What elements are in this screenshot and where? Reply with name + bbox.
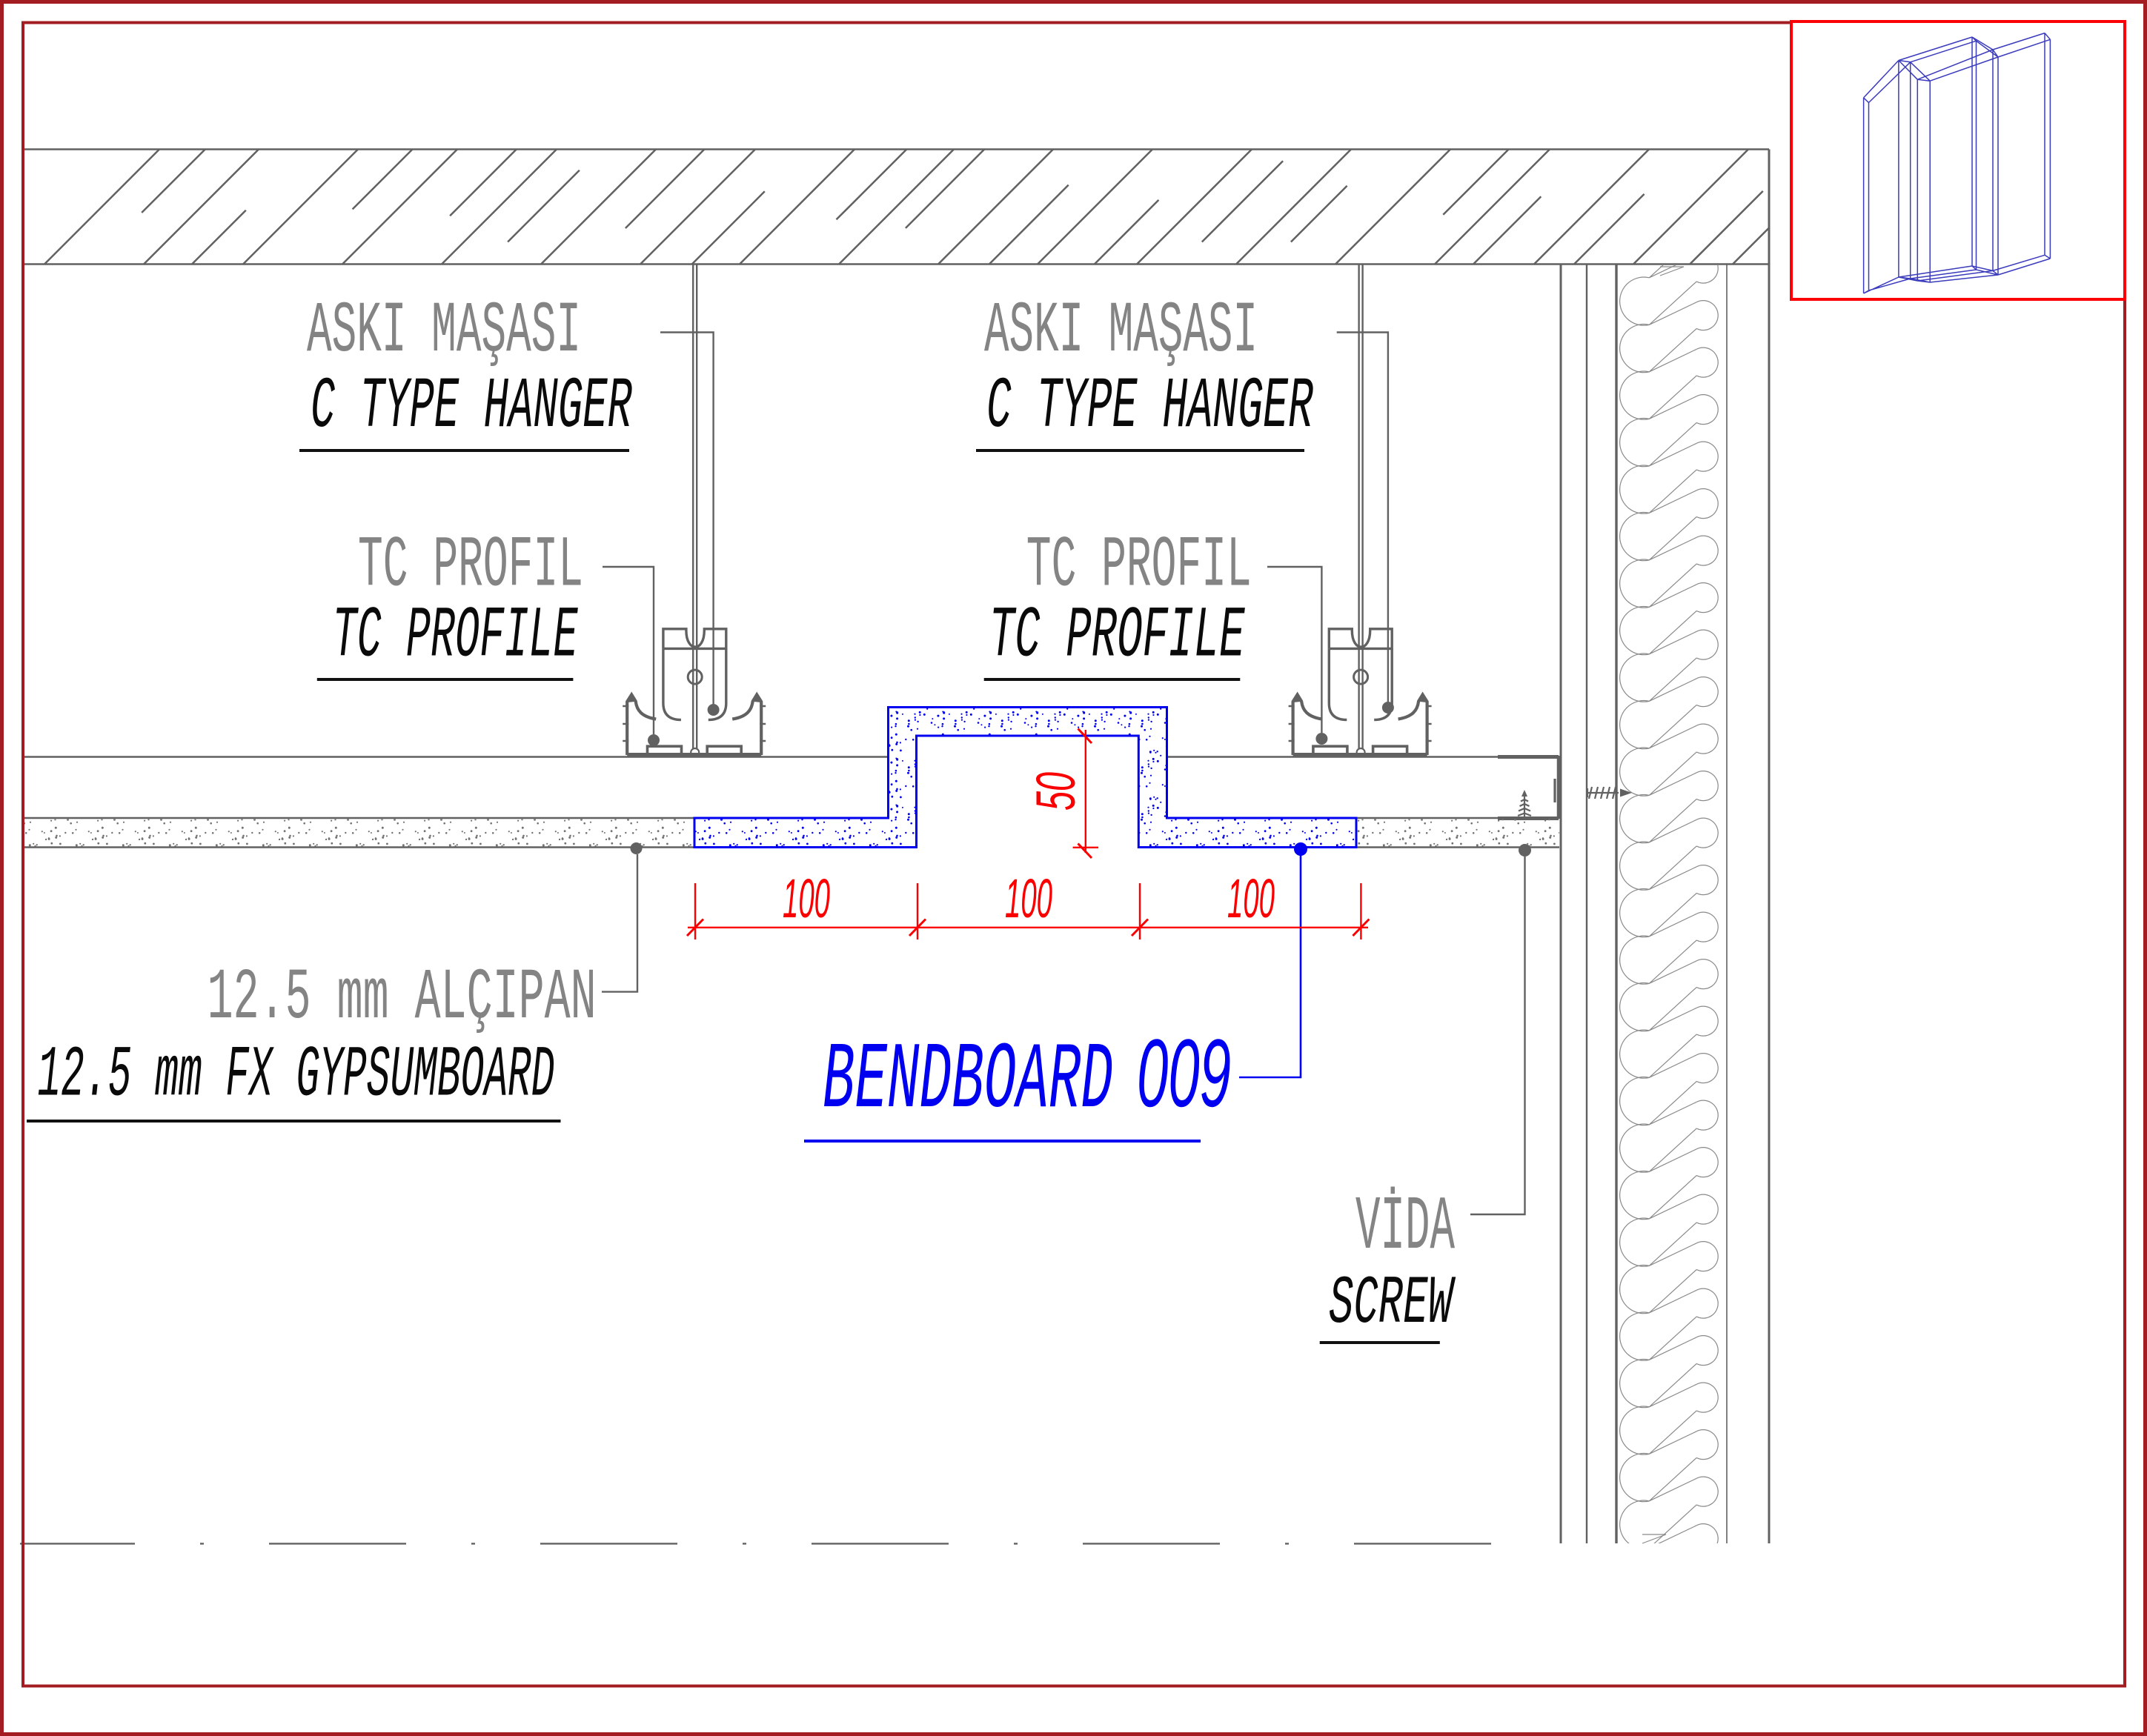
- svg-text:TC PROFIL: TC PROFIL: [358, 526, 583, 608]
- svg-text:100: 100: [1005, 868, 1052, 929]
- svg-text:009: 009: [1137, 1019, 1231, 1127]
- svg-text:VİDA: VİDA: [1355, 1184, 1455, 1271]
- svg-text:SCREW: SCREW: [1329, 1265, 1456, 1343]
- svg-text:100: 100: [1227, 868, 1275, 929]
- svg-text:C TYPE HANGER: C TYPE HANGER: [311, 367, 632, 448]
- svg-text:50: 50: [1025, 772, 1086, 811]
- svg-text:ASKI MAŞASI: ASKI MAŞASI: [307, 291, 581, 373]
- svg-text:TC PROFIL: TC PROFIL: [1026, 526, 1252, 608]
- svg-text:C TYPE HANGER: C TYPE HANGER: [986, 367, 1313, 448]
- svg-text:12.5 mm ALÇIPAN: 12.5 mm ALÇIPAN: [208, 958, 597, 1040]
- svg-text:BENDBOARD: BENDBOARD: [823, 1028, 1113, 1135]
- svg-text:12.5 mm FX GYPSUMBOARD: 12.5 mm FX GYPSUMBOARD: [38, 1035, 555, 1117]
- svg-text:TC PROFILE: TC PROFILE: [333, 596, 578, 678]
- svg-text:100: 100: [783, 868, 830, 929]
- svg-text:TC PROFILE: TC PROFILE: [989, 596, 1245, 678]
- svg-text:ASKI MAŞASI: ASKI MAŞASI: [984, 291, 1258, 373]
